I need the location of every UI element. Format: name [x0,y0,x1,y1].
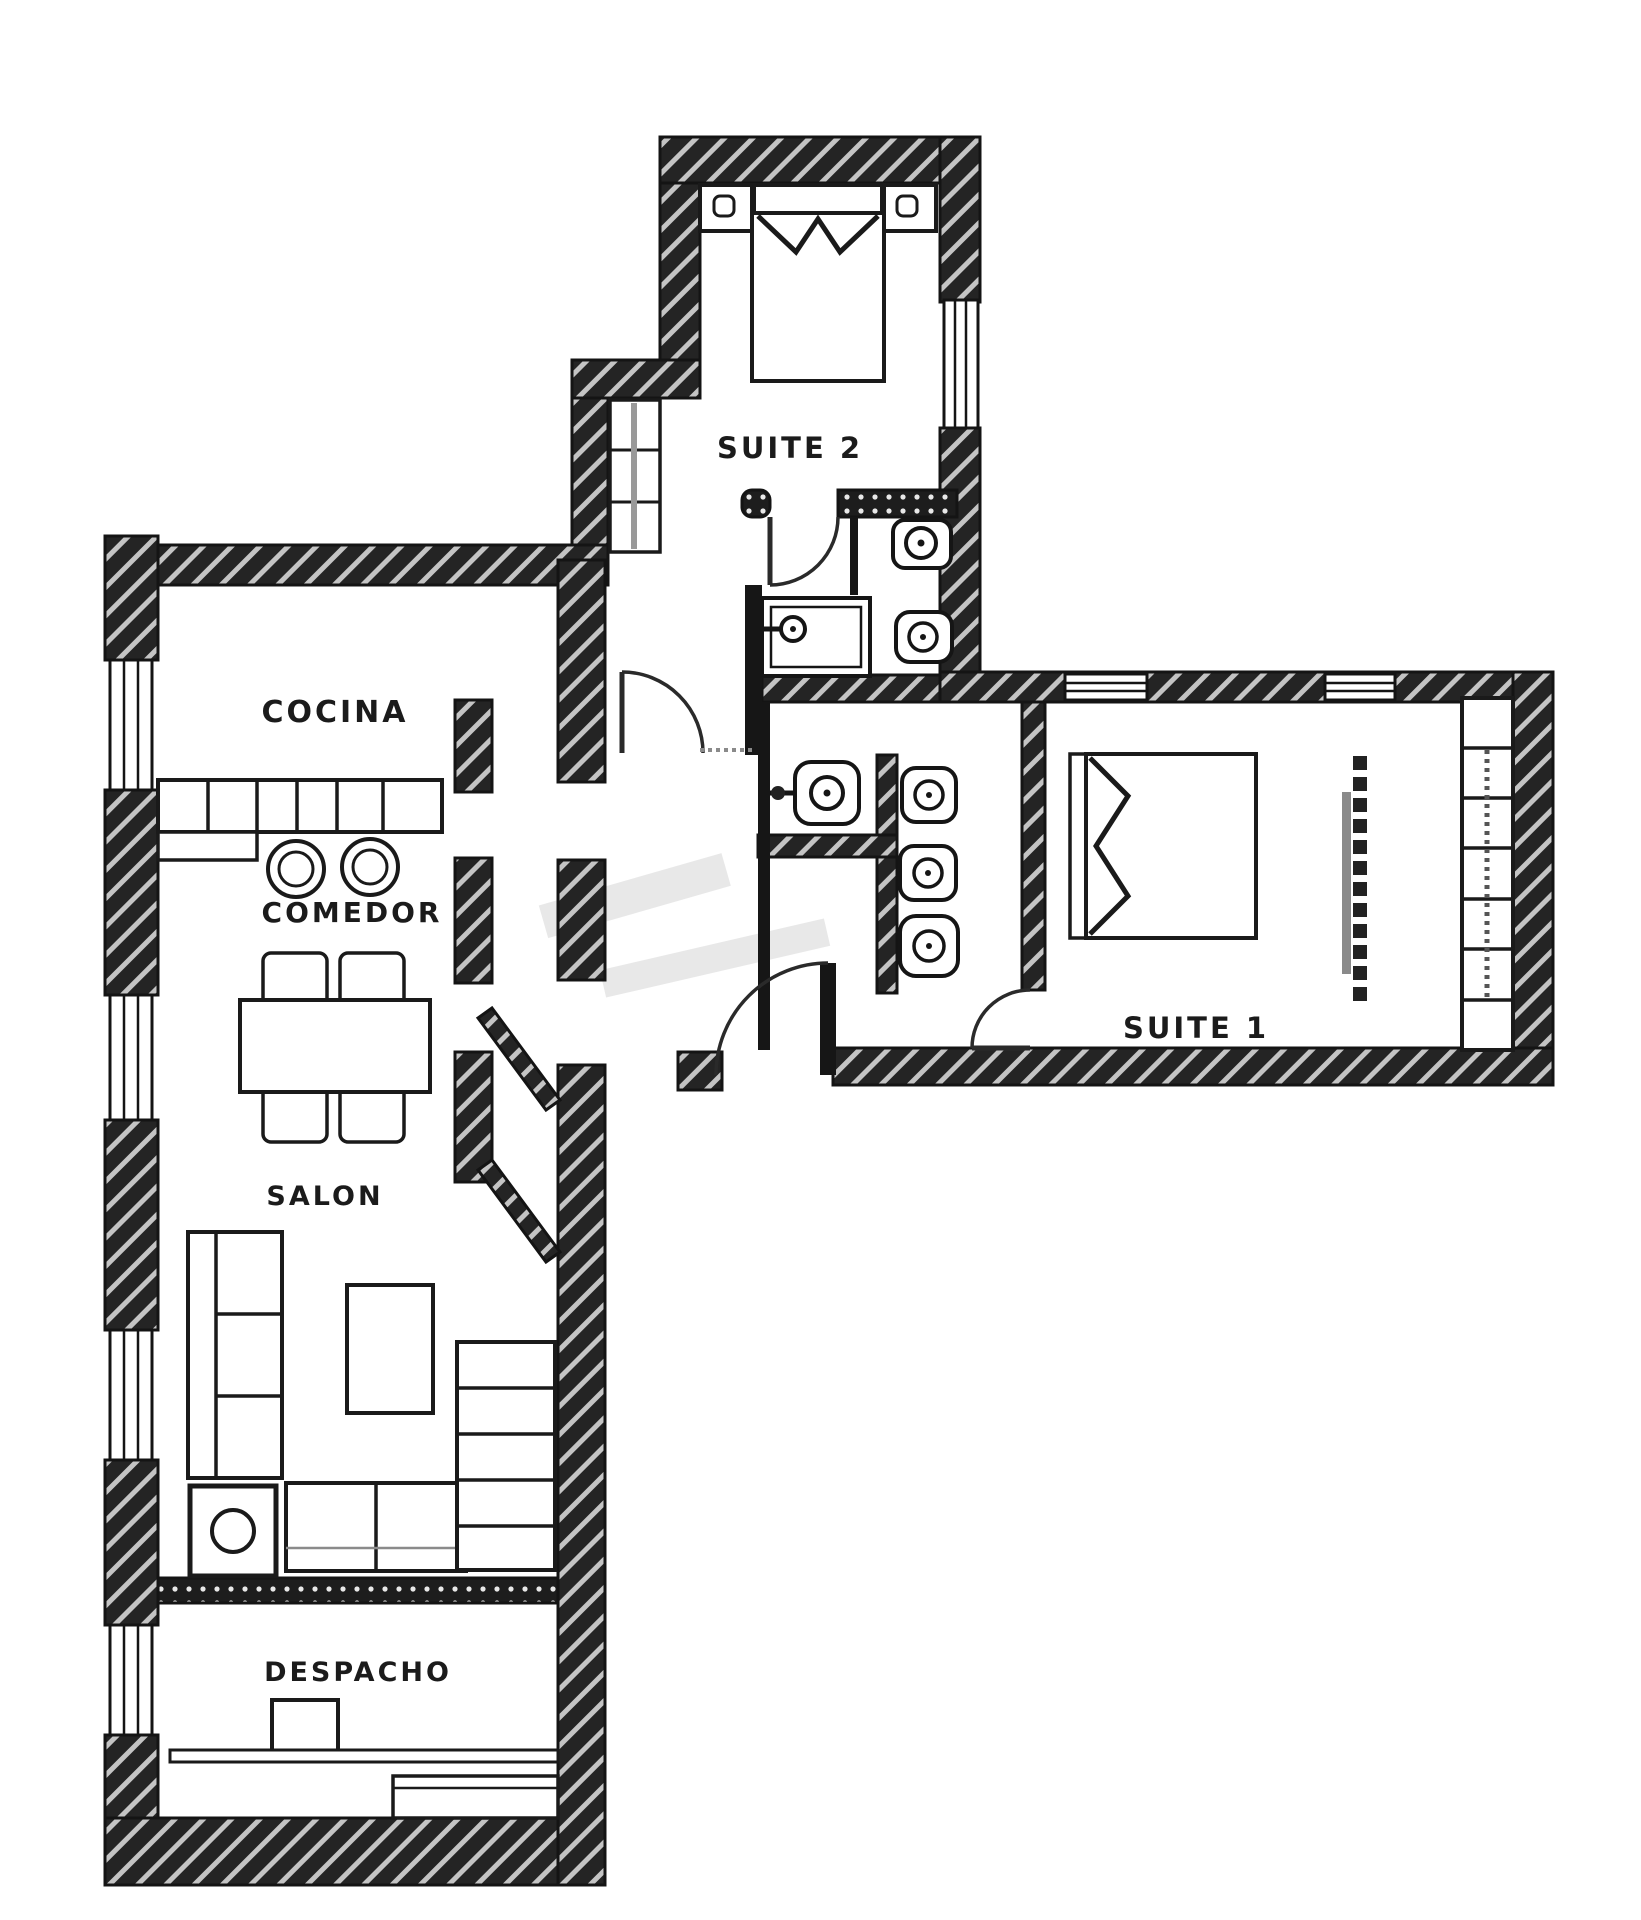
bidet [900,916,958,976]
window [944,300,978,428]
toilet [900,846,956,900]
room-label-comedor: COMEDOR [262,896,443,929]
window [1325,674,1395,700]
dining-table [240,1000,430,1092]
sofa-chaise [286,1483,466,1571]
side-desk [393,1776,558,1818]
window [110,995,152,1120]
wall-segment [850,517,858,595]
wall-segment [940,137,980,302]
wall-segment [558,860,605,980]
wall-segment [558,1065,605,1885]
wall-segment [105,1120,158,1330]
wall-segment [762,675,940,702]
floor-plan: COCINA COMEDOR SALON DESPACHO SUITE 1 SU… [0,0,1641,1920]
toilet [896,612,952,662]
nightstand [700,185,752,231]
door-leaf-salon [820,963,836,1075]
toilet [902,768,956,822]
window [110,1625,152,1735]
chair [340,1086,404,1142]
nightstand [884,185,936,231]
wall-segment [105,536,158,660]
wall-segment [1022,702,1045,990]
bar-stool [268,841,324,897]
chair [263,1086,327,1142]
bar-stool [342,839,398,895]
coffee-table [347,1285,433,1413]
room-label-salon: SALON [266,1181,383,1212]
sofa [188,1232,282,1478]
room-label-suite1: SUITE 1 [1123,1011,1269,1045]
wall-segment [838,490,957,517]
wall-segment [105,1460,158,1625]
wall-segment [758,835,897,857]
room-label-suite2: SUITE 2 [717,431,863,465]
desk-counter [170,1750,558,1762]
desk-drawer [272,1700,338,1756]
wall-segment [833,1048,1553,1085]
wall-segment [455,700,492,792]
window [110,1330,152,1460]
bed-suite1 [1070,754,1256,938]
closet-suite2 [610,400,660,552]
sink-vanity [762,598,870,676]
wall-segment [105,790,158,995]
toilet [893,520,951,568]
wall-segment [455,858,492,983]
wall-segment [758,702,770,1050]
window [110,660,152,790]
wall-segment [158,1578,558,1603]
wall-segment [558,560,605,782]
wall-segment [1513,672,1553,1085]
wall-segment [742,490,770,517]
wall-segment [105,545,608,585]
side-table-lamp [190,1486,276,1576]
bed-suite2 [752,185,884,381]
wall-segment [105,1818,602,1885]
shelf-unit [457,1342,555,1570]
wardrobe-suite1 [1462,698,1513,1050]
window [1065,674,1147,700]
wall-segment [572,398,608,548]
room-label-despacho: DESPACHO [264,1657,452,1688]
wall-segment [877,755,897,993]
wall-segment [660,137,980,183]
wall-segment [572,360,700,398]
room-label-cocina: COCINA [261,695,408,730]
